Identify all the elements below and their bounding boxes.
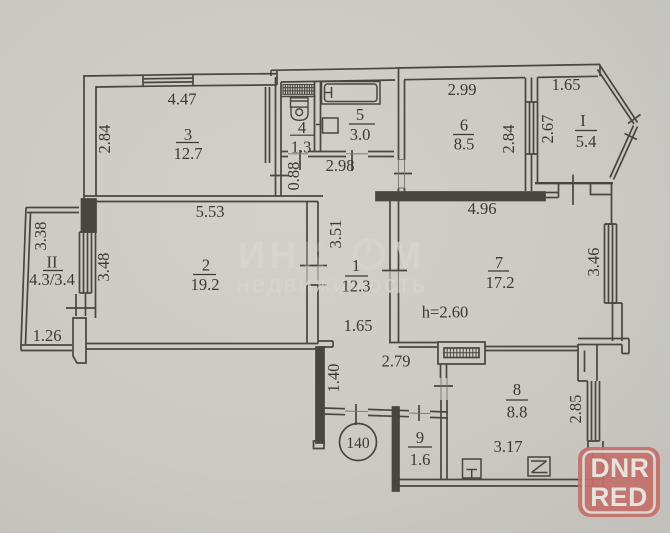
svg-text:2.99: 2.99 [448, 80, 477, 99]
svg-text:9: 9 [416, 428, 424, 447]
svg-text:0.88: 0.88 [284, 162, 303, 191]
svg-text:3.48: 3.48 [94, 253, 113, 282]
svg-text:II: II [47, 253, 58, 272]
svg-text:1.6: 1.6 [410, 450, 431, 469]
svg-text:1.26: 1.26 [33, 326, 62, 345]
svg-text:7: 7 [495, 253, 503, 272]
svg-text:3.0: 3.0 [350, 125, 371, 144]
svg-text:140: 140 [346, 435, 370, 452]
svg-text:1.3: 1.3 [291, 138, 312, 157]
svg-text:1.65: 1.65 [552, 75, 581, 94]
svg-text:8.8: 8.8 [507, 403, 528, 422]
svg-text:8.5: 8.5 [454, 135, 475, 154]
svg-text:3.51: 3.51 [326, 220, 345, 249]
svg-text:4.3/3.4: 4.3/3.4 [29, 270, 75, 289]
svg-text:4.47: 4.47 [168, 90, 197, 109]
svg-text:2.79: 2.79 [382, 352, 411, 371]
svg-text:17.2: 17.2 [486, 273, 515, 292]
svg-text:19.2: 19.2 [191, 275, 220, 294]
svg-text:4: 4 [298, 118, 306, 137]
svg-text:1.40: 1.40 [324, 364, 343, 393]
svg-text:h=2.60: h=2.60 [422, 303, 468, 322]
svg-text:I: I [580, 111, 586, 130]
svg-text:12.3: 12.3 [342, 277, 371, 296]
svg-text:2.84: 2.84 [499, 125, 518, 154]
svg-text:1.65: 1.65 [344, 316, 373, 335]
svg-text:5.4: 5.4 [576, 132, 597, 151]
svg-text:2: 2 [202, 256, 210, 275]
svg-text:RED: RED [590, 482, 647, 512]
svg-text:2.84: 2.84 [95, 125, 114, 154]
svg-text:12.7: 12.7 [174, 144, 203, 163]
svg-text:5.53: 5.53 [196, 202, 225, 221]
svg-text:8: 8 [513, 380, 521, 399]
svg-text:3.38: 3.38 [31, 222, 50, 251]
svg-text:2.98: 2.98 [326, 156, 355, 175]
svg-text:DNR: DNR [591, 453, 650, 483]
svg-text:3: 3 [184, 125, 192, 144]
svg-text:3.17: 3.17 [494, 437, 523, 456]
svg-text:6: 6 [460, 116, 468, 135]
svg-text:5: 5 [356, 105, 364, 124]
svg-text:4.96: 4.96 [468, 199, 497, 218]
svg-text:3.46: 3.46 [584, 248, 603, 277]
svg-text:2.67: 2.67 [538, 115, 557, 144]
svg-text:2.85: 2.85 [566, 395, 585, 424]
svg-text:1: 1 [352, 256, 360, 275]
svg-text:недвижимость: недвижимость [236, 271, 427, 298]
